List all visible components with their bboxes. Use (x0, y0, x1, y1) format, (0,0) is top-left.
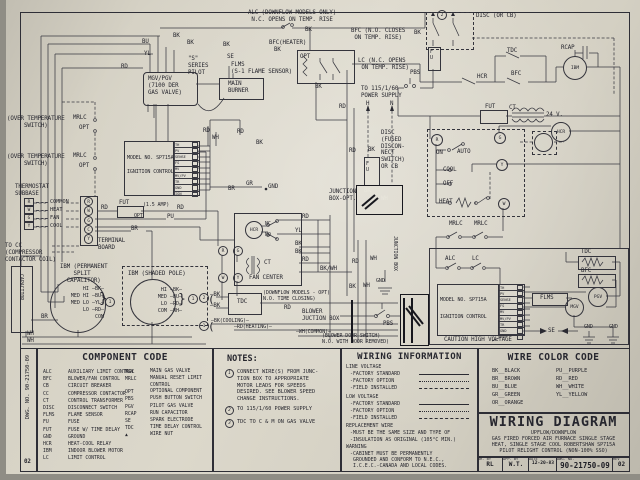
wire-label-yl: YL (144, 51, 151, 58)
field-installed-label: -FIELD INSTALLED (350, 385, 397, 391)
wire-label-wh: WH (381, 196, 388, 203)
mrlc-label: MRLC (474, 221, 488, 228)
ground-label: GND (609, 325, 618, 331)
brace-glyph: } (178, 292, 186, 307)
wire-label-bk: BK (274, 47, 281, 54)
thermostat-subbase-label: THERMOSTAT SUBBASE (15, 184, 49, 198)
component-code-row: RCAPRUN CAPACITOR (125, 411, 214, 418)
heating-lead-label: —RD(HEATING)— (234, 325, 272, 331)
wire-label-bk: BK (256, 140, 263, 147)
note-item: 2TO 115/1/60 POWER SUPPLY (225, 406, 335, 415)
fan-center-label: FAN CENTER (249, 275, 283, 282)
s-series-pilot-label: "S" SERIES PILOT (188, 56, 208, 76)
component-code-title: COMPONENT CODE (37, 352, 213, 363)
wire-color-row: BK__BLACK (492, 368, 523, 376)
fan-terminal-y: Y (233, 273, 243, 283)
blower-junction-box-label: BLOWER JUCTION BOX (302, 309, 339, 323)
junction-box-opt-label: JUNCTION BOX-OPT. (329, 189, 356, 203)
terminal-board-row: W (84, 206, 93, 215)
motor-lead-row: HI —BK— (124, 287, 182, 294)
alc-switch-label: ALC (445, 256, 455, 263)
subbase-row: YCOOL (24, 222, 69, 230)
wire-color-row: WH__WHITE (556, 384, 587, 392)
wire-label-gr: GR (246, 181, 253, 188)
wire-label-br: BR (41, 314, 48, 321)
bfc-heater-label: BFC (581, 268, 591, 275)
wire-label-bk: BK (295, 241, 302, 248)
motor-lead-row: COM —WH— (124, 308, 182, 315)
tdc-heater-label: TDC (581, 249, 591, 256)
thermostat-terminal-w: W (498, 198, 510, 210)
wire-label-rd: RD (101, 205, 108, 212)
component-code-row: MRLCMANUAL RESET LIMIT CONTROL (125, 376, 214, 389)
wire-label-br: BR (131, 226, 138, 233)
line-sample-dashed-thin (419, 418, 469, 419)
approved-by-cell: APP. BY W.T. (502, 457, 529, 471)
wire-color-row: PU__PURPLE (556, 368, 587, 376)
note-1-marker: 1 (188, 294, 198, 304)
component-code-row: HCRHEAT-COOL RELAY (43, 441, 142, 448)
ignition-model-label: MODEL NO. SP715A (127, 156, 174, 162)
wire-label-bk: BK (364, 188, 371, 195)
note-lc: LC (N.C. OPENS ON TEMP. RISE) (358, 58, 409, 72)
wire-label-rd: RD (302, 257, 309, 264)
over-temp-switch-label: (OVER TEMPERATURE SWITCH) (7, 154, 65, 168)
no-contact-label: NO (265, 233, 271, 239)
fut-label: FUT (485, 104, 495, 111)
main-burner-label: MAIN BURNER (228, 81, 248, 95)
neutral-lead-label: N (390, 101, 393, 108)
wiring-diagram-title-panel: WIRING DIAGRAM UPFLOW/DOWNFLOW GAS FIRED… (477, 412, 630, 458)
line-sample-dashdot-thin (419, 411, 469, 412)
terminal-board-row: R (84, 197, 93, 206)
note-alc-downflow: ALC (DOWNFLOW MODELS ONLY) N.C. OPENS ON… (248, 10, 336, 24)
junction-box-label: JUNCTION BOX (391, 236, 397, 271)
component-code-right: MGVMAIN GAS VALVEMRLCMANUAL RESET LIMIT … (125, 369, 214, 439)
ignition-model-label: MODEL NO. SP715A (440, 298, 487, 304)
fut-box-2 (480, 110, 508, 124)
over-temp-switch-label: (OVER TEMPERATURE SWITCH) (7, 116, 65, 130)
capacitor-label: CAPACITOR (17, 274, 23, 300)
wire-label-wh: WH (212, 135, 219, 142)
drawn-by-value: RL (478, 461, 502, 468)
rev-value: 02 (613, 461, 630, 468)
warning-line3: I.C.E.C.-CANADA AND LOCAL CODES. (353, 463, 447, 469)
ignition-terminal-strip-left: THPVSENSEFSMVMV/PVTRGNDIGN (173, 141, 200, 196)
wire-label-bk: BK (173, 33, 180, 40)
tdc-contact-label: TDC (507, 48, 517, 55)
terminal-board-row: G (84, 216, 93, 225)
disc-or-cb-label: DISC (OR CB) (476, 13, 517, 20)
factory-option-label: -FACTORY OPTION (350, 408, 394, 414)
wire-color-row: BU__BLUE (492, 384, 523, 392)
line-sample-dashdot-thick (419, 381, 469, 382)
terminal-board-label: TERMINAL BOARD (98, 238, 125, 252)
heat-cool-relay-coil: HCR (551, 122, 571, 142)
scanned-wiring-diagram: { "schematic": { "labels": { "alc1": "AL… (0, 0, 640, 480)
psc-motor-leads: HI —BK—MED HI —BU—MED LO —YL—LO —RD—COM (42, 286, 104, 320)
dwg-number-value: 90-21750-09 (557, 461, 613, 470)
wire-color-right: PU__PURPLERD__REDWH__WHITEYL__YELLOW (556, 368, 587, 400)
wire-label-rd: RD (339, 104, 346, 111)
wire-color-row: BR__BROWN (492, 376, 523, 384)
switch-cool-label: COOL (443, 167, 457, 174)
component-code-row: IBMINDOOR BLOWER MOTOR (43, 448, 142, 455)
wire-color-row: RD__RED (556, 376, 587, 384)
wire-label-bk: BK (368, 147, 375, 154)
fuse-rating-label: (1.5 AMP) (143, 203, 169, 209)
spark-electrode-label: SE (227, 54, 234, 61)
voltage-label-24v: 24 V. (546, 112, 563, 119)
transformer-label: CT (509, 105, 516, 112)
component-code-row: ▲WIRE NUT (125, 432, 214, 439)
wire-label-bk: BK (349, 284, 356, 291)
replacement-wire-line2: -INSULATION AS ORIGINAL (105°C MIN.) (350, 437, 456, 443)
wire-label-rd: RD (121, 64, 128, 71)
factory-standard-label: -FACTORY STANDARD (350, 371, 400, 377)
wire-label-bk: BK (187, 40, 194, 47)
spark-electrode-label: SE (548, 328, 555, 335)
terminal-board-row: Y (84, 234, 93, 243)
component-code-panel: COMPONENT CODE ALCAUXILIARY LIMIT CONTRO… (36, 348, 214, 472)
nc-contact-label: NC (265, 222, 271, 228)
wire-label-bk: BK (315, 84, 322, 91)
component-code-row: PGVPILOT GAS VALVE (125, 404, 214, 411)
note-2-marker: 2 (437, 10, 447, 20)
thermostat-terminal-g: G (494, 132, 506, 144)
note-disconnect: DISC (FUSED DISCON- NECT SWITCH) OR CB (381, 130, 405, 171)
wire-label-bk: —BK (210, 303, 220, 310)
wire-color-row: OR__ORANGE (492, 400, 523, 408)
wire-label-wh: WH (27, 338, 34, 345)
diagram-subtitle-4: PILOT RELIGHT CONTROL (NON-100% SSO) (478, 448, 629, 454)
fuse-label: F U (366, 162, 369, 174)
side-strip-dwg-number: DWG. NO. 90-21750-09 (25, 355, 31, 419)
main-gas-valve-symbol: MGV (565, 298, 584, 317)
indoor-blower-motor-symbol: IBM (563, 56, 587, 80)
thermostat-subbase-rows: RCOMMONWHEATGFANYCOOL (24, 198, 69, 230)
note-downflow-tdc: (DOWNFLOW MODELS - OPT) N.O. TIME CLOSIN… (263, 291, 330, 303)
brace-glyph: } (99, 291, 107, 308)
wire-label-bk: —BK (210, 292, 220, 299)
title-block-row: DR. BY RL APP. BY W.T. DATE 12-20-83 DWG… (477, 456, 630, 472)
warning-label: WARNING (346, 444, 367, 450)
motor-lead-row: LO —RD— (42, 307, 104, 314)
flame-sensor-label: FLMS (540, 295, 554, 302)
wire-label-rd: RD (302, 214, 309, 221)
note-bfc: BFC (N.O. CLOSES ON TEMP. RISE) (351, 28, 405, 42)
compressor-contactor-coil (534, 133, 553, 152)
ignition-terminal-strip-right: THPVSENSEFSMVMV/PVTRGNDIGN (498, 284, 525, 336)
wire-label-bu: BU (142, 39, 149, 46)
notes-title: NOTES: (227, 354, 341, 364)
switch-heat-label: HEAT (439, 199, 453, 206)
wire-color-row: YL__YELLOW (556, 392, 587, 400)
wire-label-pu: PU (167, 214, 174, 221)
side-strip-rev: 02 (24, 459, 31, 466)
bfc-contact-label: BFC (511, 71, 521, 78)
ground-label: GND (268, 184, 278, 191)
line-voltage-label: LINE VOLTAGE (346, 364, 381, 370)
pbs-label: PBS (410, 70, 420, 77)
motor-lead-row: HI —BK— (42, 286, 104, 293)
notes-list: 1CONNECT WIRE(S) FROM JUNC- TION BOX TO … (225, 369, 335, 431)
field-installed-label: -FIELD INSTALLED (350, 415, 397, 421)
line-sample-dashed-thick (419, 388, 469, 389)
dwg-number-cell: DWG. NO. 90-21750-09 (556, 457, 613, 471)
component-code-row: LCLIMIT CONTROL (43, 455, 142, 462)
disconnect-box (426, 12, 474, 50)
opt-label: OPT (134, 214, 143, 220)
note-item: 3TDC TO C & M ON GAS VALVE (225, 419, 335, 428)
switch-on-label: ON (436, 150, 443, 157)
fuse-label: F U (430, 50, 433, 62)
heat-cool-relay-symbol: HCR (245, 221, 263, 239)
flame-sensor-label: FLMS (S-1 FLAME SENSOR) (231, 62, 292, 76)
gas-valve-label: MGV/PGV (7100 DER GAS VALVE) (148, 76, 182, 96)
replacement-wire-label: REPLACEMENT WIRE (346, 423, 393, 429)
pbs-label: PBS (383, 321, 393, 328)
line-sample-solid-thick (419, 374, 469, 375)
low-voltage-label: LOW VOLTAGE (346, 394, 378, 400)
fan-terminal-g: G (233, 246, 243, 256)
fan-terminal-w: W (218, 273, 228, 283)
wiring-diagram-title: WIRING DIAGRAM (478, 414, 629, 430)
wire-label-rd: RD (203, 128, 210, 135)
wire-label-bk: BK (223, 42, 230, 49)
opt-label: OPT (79, 125, 89, 132)
motor-lead-row: MED LO —YL— (42, 300, 104, 307)
ground-label: GND (584, 325, 593, 331)
psc-motor-label: IBM (PERMANENT SPLIT CAPACITOR) (60, 264, 107, 284)
fan-terminal-r: R (218, 246, 228, 256)
transformer-label: CT (264, 260, 271, 267)
motor-lead-row: COM (42, 314, 104, 321)
wiring-info-title: WIRING INFORMATION (341, 352, 478, 362)
date-value: 12-20-83 (529, 461, 557, 466)
approved-by-value: W.T. (503, 461, 529, 468)
terminal-board-terminals: RWGCY (84, 197, 93, 243)
to-compressor-contactor-label: TO CC (COMPRESSOR CONTACTOR COIL) (5, 243, 56, 263)
opt-label: OPT (300, 54, 310, 61)
bfc-heater-label: BFC(HEATER) (269, 40, 306, 47)
rev-cell: REV 02 (612, 457, 630, 471)
run-capacitor-label: RCAP (561, 45, 575, 52)
shaded-pole-motor-leads: HI —BK—MED —BU—LO —RD—COM —WH— (124, 287, 182, 315)
drawn-by-cell: DR. BY RL (478, 457, 502, 471)
wire-label-br: BR (228, 186, 235, 193)
thermostat-terminal-y: Y (496, 159, 508, 171)
ignition-control-label: IGNITION CONTROL (127, 170, 174, 176)
bfc-heater-box (578, 274, 616, 288)
wire-label-bk: BK (295, 249, 302, 256)
hot-lead-label: H (366, 101, 369, 108)
wire-label-wh: WH (370, 256, 377, 263)
wire-label-rd: RD (237, 129, 244, 136)
note-item: 1CONNECT WIRE(S) FROM JUNC- TION BOX TO … (225, 369, 335, 403)
wire-label-bk: BK (305, 27, 312, 34)
mrlc-label: MRLC (73, 153, 87, 160)
ignition-control-label: IGNITION CONTROL (440, 315, 487, 321)
terminal-row: IGN (174, 192, 199, 197)
motor-lead-row: LO —RD— (124, 301, 182, 308)
mrlc-label: MRLC (73, 115, 87, 122)
caution-high-voltage-label: CAUTION HIGH VOLTAGE (444, 337, 512, 344)
wire-label-wh: WH (363, 283, 370, 290)
blower-door-switch-label: (BLOWER DOOR SWITCH) N.O. WITH DOOR REMO… (322, 334, 389, 346)
component-code-row: PBSPUSH BUTTON SWITCH (125, 396, 214, 403)
fut-label: FUT (119, 200, 129, 207)
component-code-row: SESPARK ELECTRODE (125, 418, 214, 425)
factory-standard-label: -FACTORY STANDARD (350, 401, 400, 407)
wiring-information-panel: WIRING INFORMATION LINE VOLTAGE -FACTORY… (340, 348, 479, 472)
wire-label-rd: RD (284, 305, 291, 312)
wire-label-bkwh: BK/WH (320, 266, 337, 273)
wire-label-rd: RD (177, 205, 184, 212)
wire-label-yl: YL (295, 228, 302, 235)
date-cell: DATE 12-20-83 (528, 457, 557, 471)
opt-label: OPT (79, 163, 89, 170)
wire-label-rd: RD (349, 148, 356, 155)
motor-lead-row: MED HI —BU— (42, 293, 104, 300)
ground-label: GND (376, 279, 385, 285)
tdc-box-label: TDC (237, 299, 247, 306)
wire-color-left: BK__BLACKBR__BROWNBU__BLUEGR__GREENOR__O… (492, 368, 523, 408)
thermostat-terminal-r: R (431, 134, 443, 146)
wire-label-bk: BK (414, 30, 421, 37)
wire-label-rd: RD (352, 259, 359, 266)
motor-lead-row: MED —BU— (124, 294, 182, 301)
wire-color-code-title: WIRE COLOR CODE (478, 352, 629, 363)
wire-color-code-panel: WIRE COLOR CODE BK__BLACKBR__BROWNBU__BL… (477, 348, 630, 414)
switch-auto-label: AUTO (457, 149, 471, 156)
replacement-wire-line1: -MUST BE THE SAME SIZE AND TYPE OF (350, 430, 450, 436)
line-sample-solid-thin (419, 404, 469, 405)
notes-panel: NOTES: 1CONNECT WIRE(S) FROM JUNC- TION … (212, 348, 342, 472)
note-power-supply: TO 115/1/60 POWER SUPPLY (361, 86, 402, 100)
hcr-contact-label: HCR (477, 74, 487, 81)
mrlc-label: MRLC (449, 221, 463, 228)
switch-off-label: OFF (443, 181, 453, 188)
factory-option-label: -FACTORY OPTION (350, 378, 394, 384)
blower-junction-box (400, 294, 429, 346)
terminal-board-row: C (84, 225, 93, 234)
wire-label-wh: WH (27, 331, 34, 338)
shaded-pole-motor-label: IBM (SHADED POLE) (128, 271, 186, 278)
wire-color-row: GR__GREEN (492, 392, 523, 400)
pilot-gas-valve-symbol: PGV (588, 287, 608, 307)
lc-switch-label: LC (472, 256, 479, 263)
